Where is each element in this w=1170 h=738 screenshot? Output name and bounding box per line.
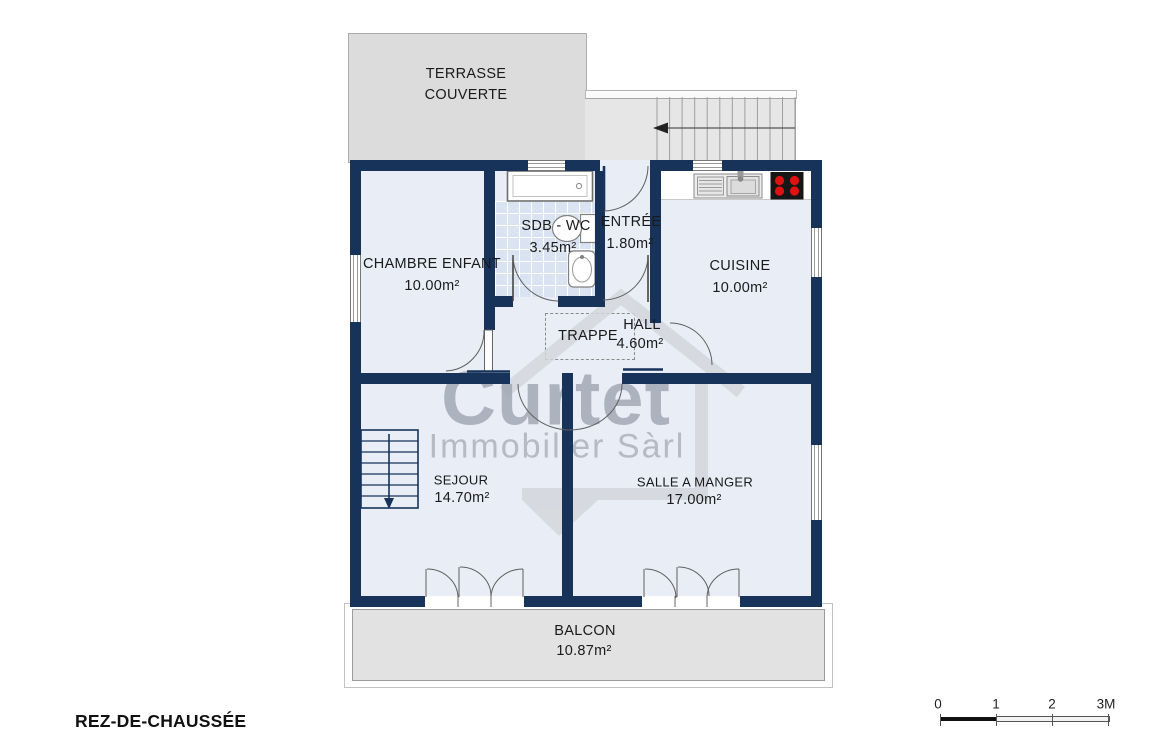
cuisine-label: CUISINE (710, 258, 771, 274)
scale-tick (1052, 714, 1053, 726)
trappe-label: TRAPPE (558, 328, 618, 344)
entree-area: 1.80m² (607, 236, 654, 252)
scale-tick (940, 714, 941, 726)
balcony-label: BALCON (554, 623, 615, 639)
scale-tick (996, 714, 997, 726)
scale-label-0: 0 (934, 697, 942, 712)
floor-title: REZ-DE-CHAUSSÉE (75, 711, 246, 732)
wall-top (350, 160, 822, 171)
floor-plan-canvas: Curtet Immobilier Sàrl (0, 0, 1170, 738)
entree-label: ENTRÉE (601, 214, 662, 230)
salle-label: SALLE A MANGER (637, 475, 753, 490)
wall-hall-north-2 (558, 296, 603, 307)
window-top-cuisine (693, 160, 722, 171)
wall-bottom (350, 596, 822, 607)
exterior-staircase-area (585, 98, 796, 161)
scale-bar-outline (996, 716, 1110, 722)
wall-sejour-salle (562, 373, 573, 607)
scale-bar-filled (940, 717, 996, 721)
entrance-door-opening (600, 160, 650, 171)
window-right-salle (811, 445, 822, 520)
chambre-label: CHAMBRE ENFANT (363, 256, 501, 272)
scale-label-1: 1 (992, 697, 1000, 712)
window-left-chambre (350, 255, 361, 322)
terrace-label: TERRASSE COUVERTE (425, 64, 508, 106)
window-top-sdb (528, 160, 565, 171)
sejour-area: 14.70m² (434, 490, 489, 506)
salle-area: 17.00m² (666, 492, 721, 508)
french-door-sejour (425, 596, 524, 607)
watermark-subtitle: Immobilier Sàrl (429, 428, 686, 467)
sdb-area: 3.45m² (530, 240, 577, 256)
scale-tick (1108, 714, 1109, 726)
chambre-area: 10.00m² (404, 278, 459, 294)
sejour-label: SEJOUR (434, 473, 489, 488)
wall-left (350, 160, 361, 607)
sdb-label: SDB - WC (521, 218, 590, 234)
balcony-area: 10.87m² (556, 643, 611, 659)
cuisine-area: 10.00m² (712, 280, 767, 296)
wall-sdb-entree (595, 160, 605, 307)
wall-mid-east (622, 373, 811, 384)
scale-label-3: 3M (1097, 697, 1116, 712)
wall-hall-north-1 (484, 296, 513, 307)
window-right-cuisine (811, 228, 822, 277)
hall-label: HALL (623, 317, 660, 333)
scale-label-2: 2 (1048, 697, 1056, 712)
wall-mid-west (361, 373, 510, 384)
french-door-salle (642, 596, 740, 607)
hall-area: 4.60m² (617, 336, 664, 352)
